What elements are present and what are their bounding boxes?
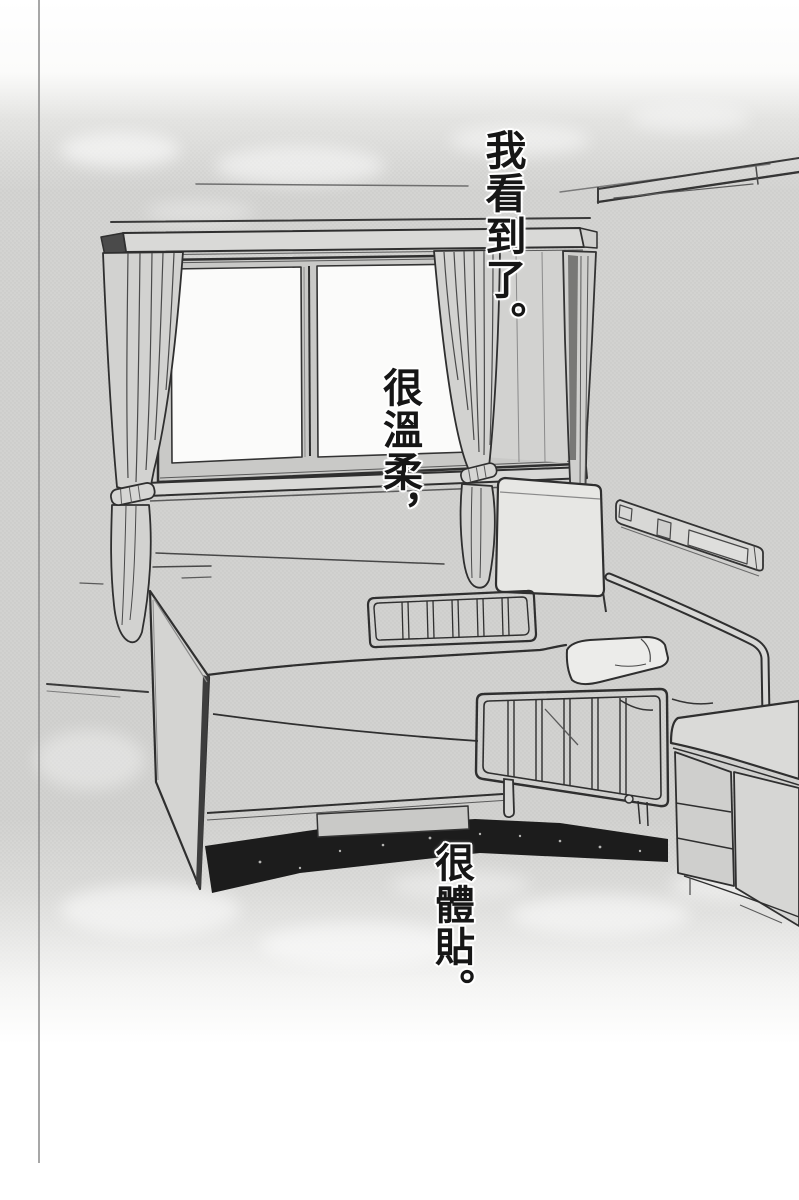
rail-bolt — [625, 795, 633, 803]
curtain-right-tail — [461, 484, 495, 588]
caption-top-right: 我看到了。 — [481, 129, 522, 344]
rail-leg-left — [504, 779, 514, 817]
manga-page: 我看到了。 很溫柔， 很體貼。 — [0, 0, 799, 1200]
nightstand-drawer-face — [675, 752, 734, 886]
caption-bottom: 很體貼。 — [431, 842, 471, 1010]
window-pane-left — [171, 267, 302, 463]
window-mullion — [309, 266, 310, 456]
room-illustration — [0, 0, 799, 1200]
caption-middle: 很溫柔， — [379, 367, 419, 535]
